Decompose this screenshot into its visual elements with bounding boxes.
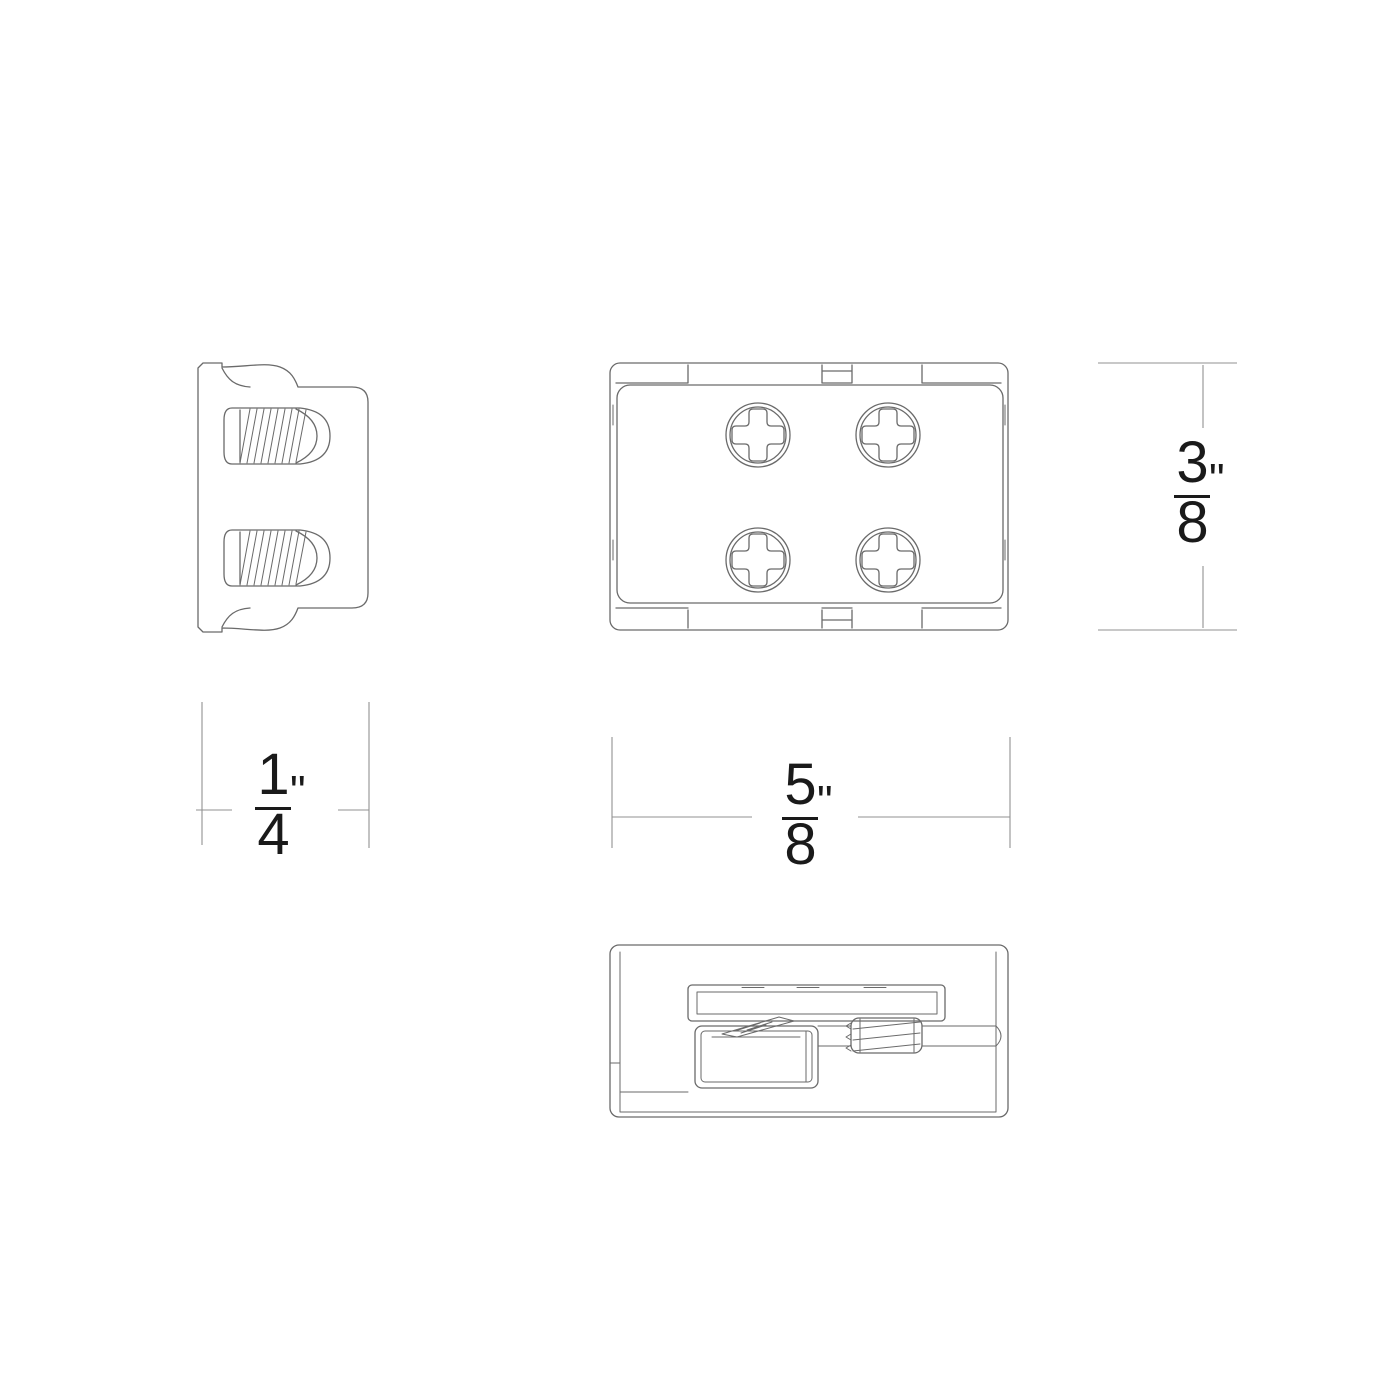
phillips-screw-bottom-left — [726, 528, 790, 592]
top-view — [610, 363, 1008, 630]
technical-drawing — [0, 0, 1400, 1400]
height-dimension-label: 3 8 " — [1156, 434, 1228, 552]
width-dimension-label: 5 8 " — [764, 756, 836, 874]
inch-mark: " — [290, 770, 306, 814]
depth-dimension-label: 1 4 " — [237, 746, 309, 864]
phillips-screw-top-left — [726, 403, 790, 467]
inch-mark: " — [817, 780, 833, 824]
inch-mark: " — [1209, 458, 1225, 502]
side-view — [610, 945, 1008, 1117]
phillips-screw-top-right — [856, 403, 920, 467]
end-view — [198, 363, 368, 632]
phillips-screw-bottom-right — [856, 528, 920, 592]
drawing-canvas: 3 8 " 1 4 " 5 8 " — [0, 0, 1400, 1400]
